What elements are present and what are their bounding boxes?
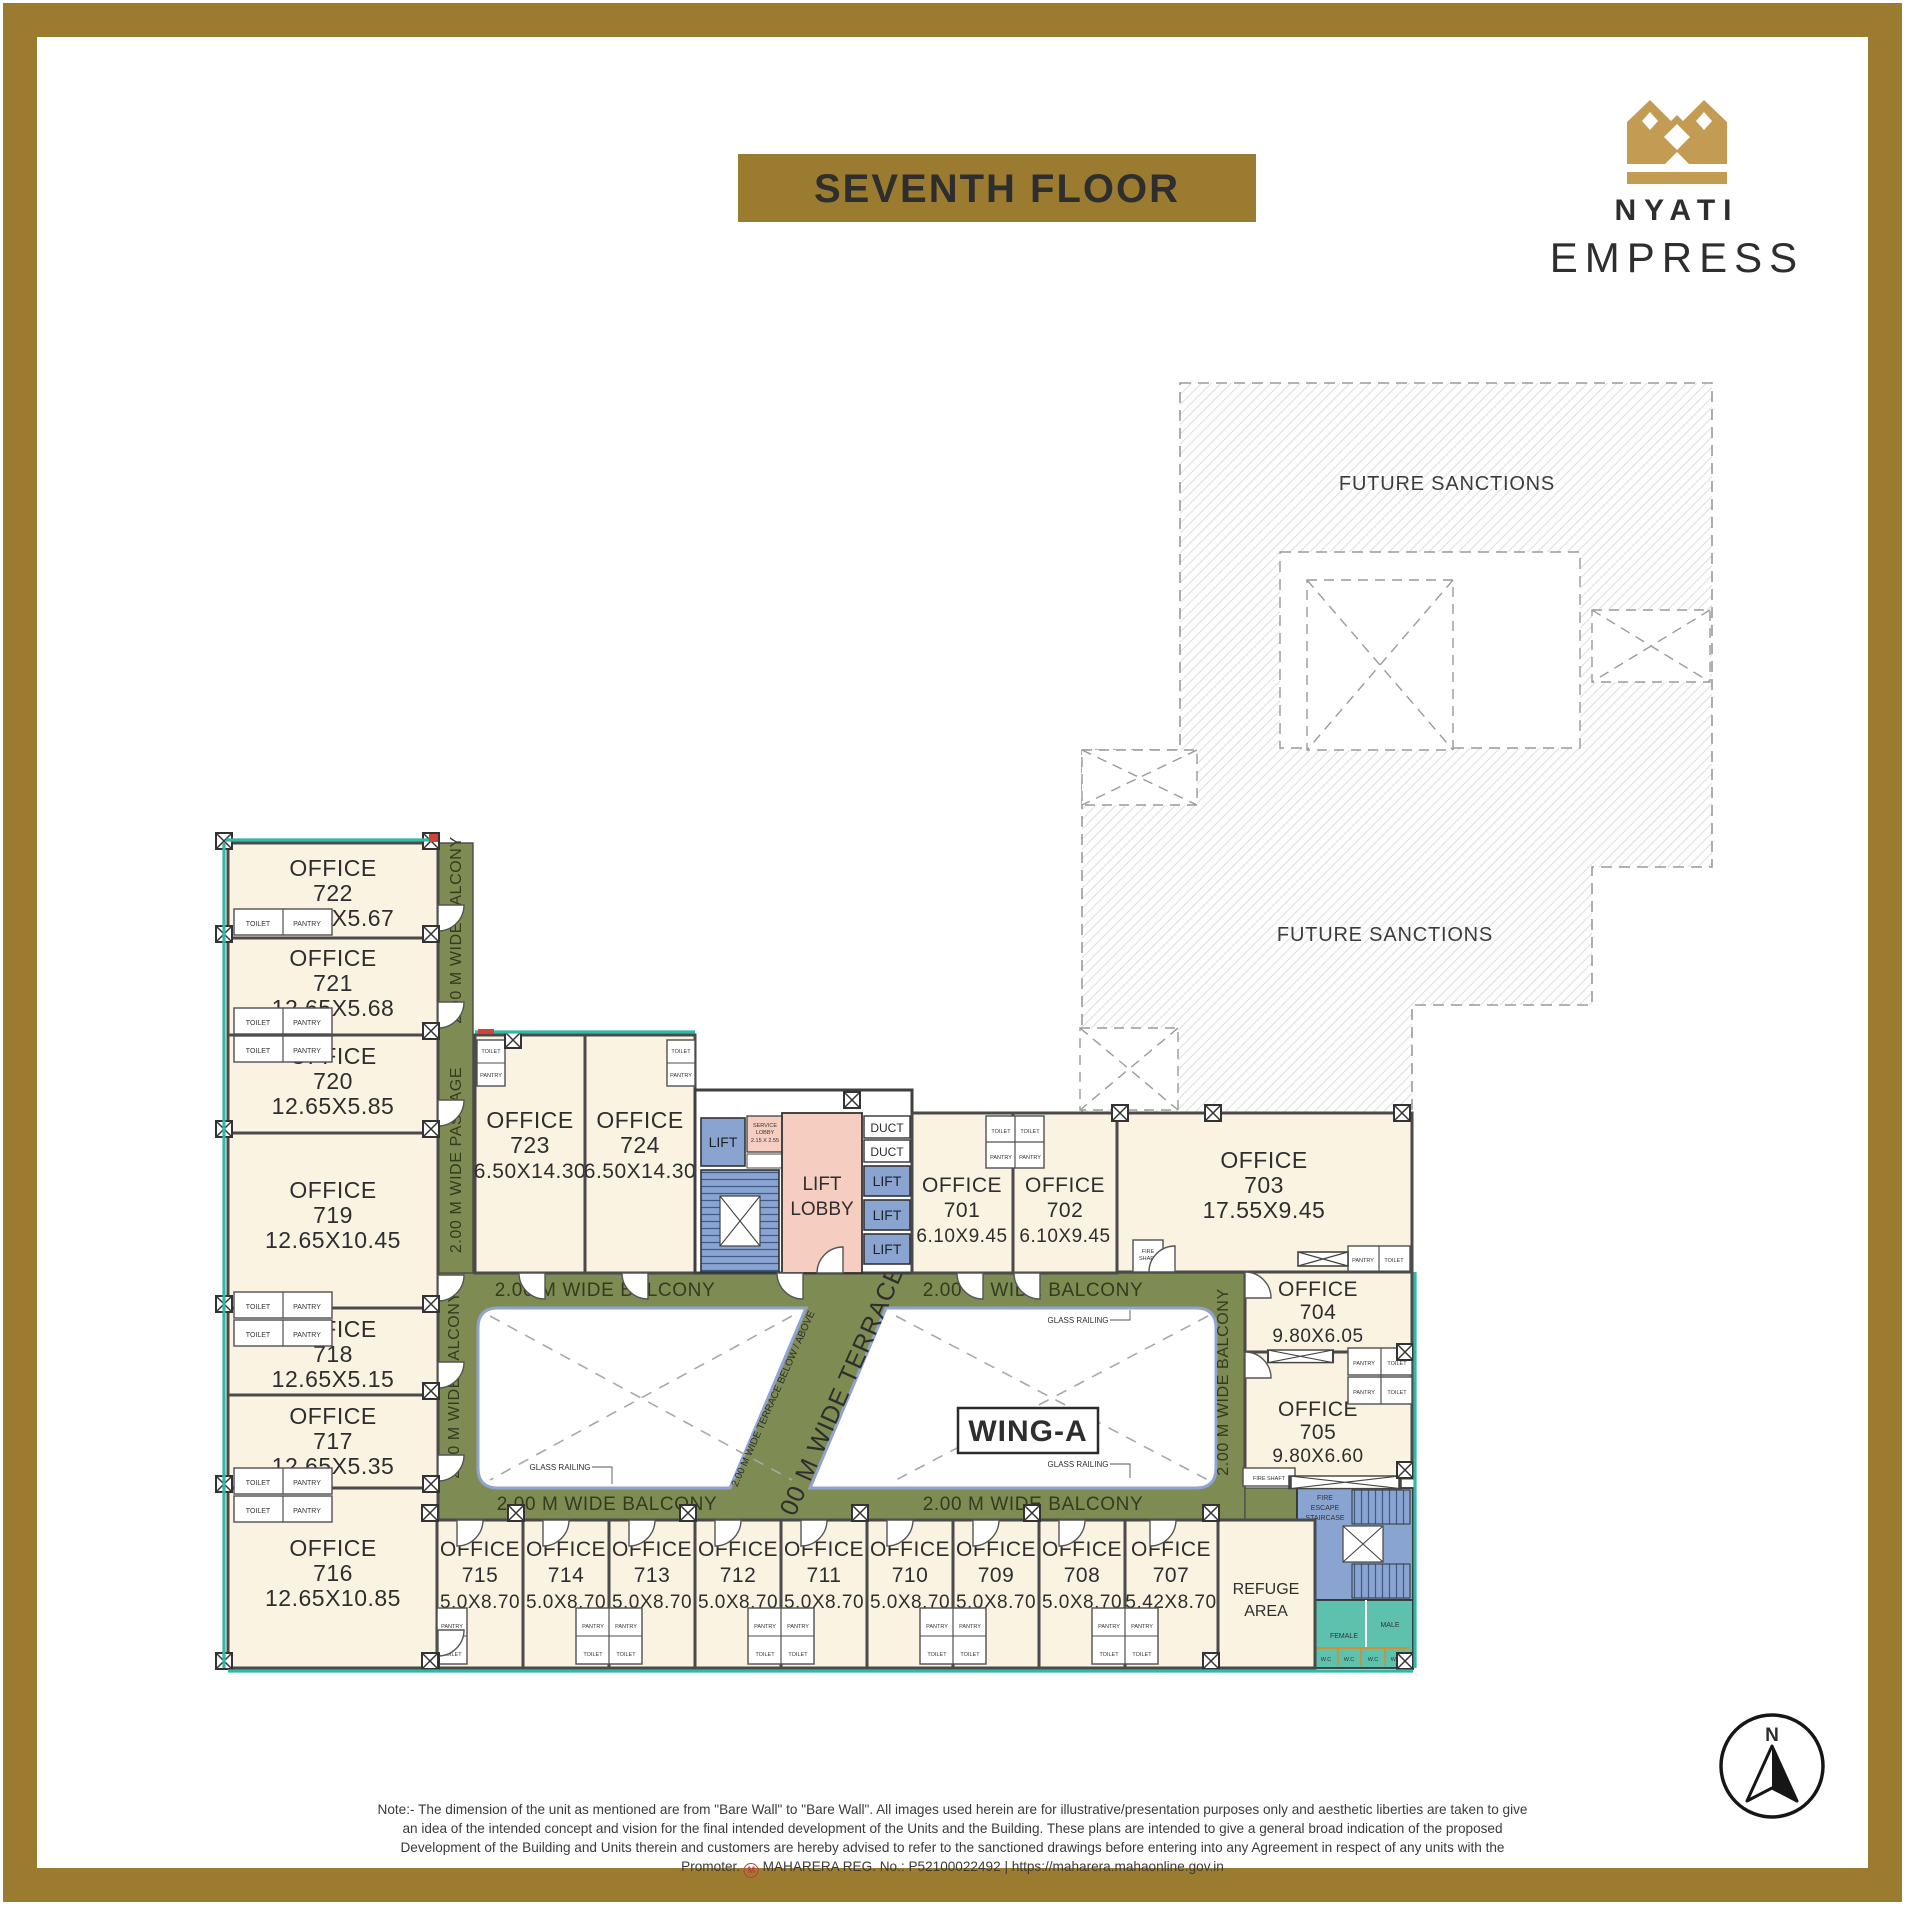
fire-shaft-705: FIRE SHAFT (1243, 1468, 1295, 1486)
office-number: 714 (548, 1564, 585, 1587)
office-719: OFFICE 719 12.65X10.45 (228, 1133, 438, 1308)
office-label: OFFICE (440, 1538, 520, 1561)
office-label: OFFICE (612, 1538, 692, 1561)
office-number: 724 (620, 1132, 660, 1158)
lift-label: LIFT (873, 1207, 902, 1223)
office-label: OFFICE (289, 1177, 376, 1203)
svg-text:TOILET: TOILET (755, 1652, 775, 1658)
glass-railing-label: GLASS RAILING (1048, 1460, 1109, 1469)
svg-text:PANTRY: PANTRY (1353, 1390, 1375, 1396)
refuge-area: REFUGE AREA (1218, 1520, 1315, 1668)
svg-text:FIRE SHAFT: FIRE SHAFT (1253, 1476, 1286, 1482)
svg-text:TOILET: TOILET (583, 1652, 603, 1658)
disclaimer-note: Note:- The dimension of the unit as ment… (370, 1800, 1535, 1879)
floorplan-page: SEVENTH FLOOR NYATI EMPRESS FUTURE SANCT… (0, 0, 1905, 1905)
office-label: OFFICE (526, 1538, 606, 1561)
svg-text:TOILET: TOILET (927, 1652, 947, 1658)
compass-north-label: N (1765, 1725, 1779, 1746)
office-number: 719 (313, 1202, 353, 1228)
office-number: 720 (313, 1068, 353, 1094)
crown-icon (1627, 100, 1727, 184)
office-label: OFFICE (784, 1538, 864, 1561)
office-number: 705 (1300, 1421, 1337, 1444)
maharera-badge-icon: M (744, 1863, 759, 1878)
office-label: OFFICE (289, 945, 376, 971)
svg-text:PANTRY: PANTRY (1353, 1361, 1375, 1367)
lift-label: LIFT (709, 1134, 738, 1150)
svg-text:PANTRY: PANTRY (480, 1073, 502, 1079)
office-dims: 12.65X10.45 (265, 1227, 401, 1253)
service-lobby-dims: 2.15 X 2.55 (751, 1138, 779, 1144)
office-number: 717 (313, 1428, 353, 1454)
svg-text:TOILET: TOILET (960, 1652, 980, 1658)
svg-text:PANTRY: PANTRY (926, 1624, 948, 1630)
refuge-label: REFUGE (1233, 1581, 1300, 1598)
male-toilet-label: MALE (1380, 1622, 1399, 1629)
balcony-ext (1245, 1488, 1297, 1520)
office-number: 712 (720, 1564, 757, 1587)
svg-text:PANTRY: PANTRY (293, 1332, 321, 1339)
svg-text:TOILET: TOILET (1020, 1129, 1040, 1135)
duct-label: DUCT (870, 1145, 904, 1159)
svg-text:PANTRY: PANTRY (1131, 1624, 1153, 1630)
future-sanctions-label: FUTURE SANCTIONS (1339, 473, 1555, 495)
office-label: OFFICE (1278, 1278, 1358, 1301)
svg-text:TOILET: TOILET (246, 1304, 271, 1311)
office-704: OFFICE 704 9.80X6.05 (1245, 1272, 1412, 1352)
pt-pair: PANTRYPANTRY TOILETTOILET (1092, 1608, 1158, 1664)
office-number: 721 (313, 970, 353, 996)
page-title: SEVENTH FLOOR (814, 167, 1180, 211)
office-dims: 6.50X14.30 (584, 1160, 696, 1183)
svg-text:TOILET: TOILET (1387, 1390, 1407, 1396)
svg-text:FIRE: FIRE (1317, 1495, 1333, 1502)
office-number: 722 (313, 880, 353, 906)
offices-west: OFFICE 722 12.65X5.67 OFFICE 721 12.65X5… (228, 843, 438, 1668)
office-label: OFFICE (596, 1107, 683, 1133)
office-label: OFFICE (956, 1538, 1036, 1561)
svg-text:PANTRY: PANTRY (615, 1624, 637, 1630)
svg-text:ESCAPE: ESCAPE (1311, 1505, 1340, 1512)
svg-text:FIRE: FIRE (1142, 1249, 1155, 1255)
office-label: OFFICE (1025, 1174, 1105, 1197)
lift-lobby-label: LIFT (802, 1174, 841, 1195)
toilet-pantry-701-702: TOILETTOILET PANTRYPANTRY (986, 1116, 1044, 1168)
service-lobby-label: LOBBY (756, 1130, 775, 1136)
svg-text:TOILET: TOILET (481, 1049, 501, 1055)
office-number: 708 (1064, 1564, 1101, 1587)
office-number: 701 (944, 1199, 981, 1222)
office-label: OFFICE (1042, 1538, 1122, 1561)
svg-text:W.C: W.C (1344, 1657, 1354, 1663)
svg-text:PANTRY: PANTRY (670, 1073, 692, 1079)
svg-text:TOILET: TOILET (1387, 1361, 1407, 1367)
balcony-label-east-vertical: 2.00 M WIDE BALCONY (1215, 1288, 1232, 1475)
wing-label-box: WING-A (958, 1408, 1098, 1453)
office-dims: 12.65X5.15 (272, 1366, 395, 1392)
brand-name: NYATI (1614, 194, 1739, 227)
svg-text:PANTRY: PANTRY (293, 1048, 321, 1055)
office-number: 704 (1300, 1301, 1337, 1324)
svg-text:PANTRY: PANTRY (1352, 1258, 1374, 1264)
office-number: 702 (1047, 1199, 1084, 1222)
svg-text:TOILET: TOILET (1384, 1258, 1404, 1264)
office-dims: 17.55X9.45 (1203, 1197, 1326, 1223)
floorplan-svg: SEVENTH FLOOR NYATI EMPRESS FUTURE SANCT… (0, 0, 1905, 1905)
svg-text:PANTRY: PANTRY (582, 1624, 604, 1630)
svg-text:PANTRY: PANTRY (293, 1508, 321, 1515)
rera-registration: MAHARERA REG. No.: P52100022492 | https:… (763, 1859, 1224, 1874)
svg-text:PANTRY: PANTRY (293, 921, 321, 928)
pt-pair: PANTRYPANTRY TOILETTOILET (920, 1608, 986, 1664)
svg-text:PANTRY: PANTRY (959, 1624, 981, 1630)
future-sanctions-zone: FUTURE SANCTIONS FUTURE SANCTIONS (1080, 383, 1712, 1113)
office-label: OFFICE (698, 1538, 778, 1561)
service-lobby-label: SERVICE (753, 1123, 777, 1129)
svg-text:PANTRY: PANTRY (293, 1304, 321, 1311)
refuge-label: AREA (1244, 1603, 1288, 1620)
pt-pair: PANTRYPANTRY TOILETTOILET (748, 1608, 814, 1664)
svg-text:PANTRY: PANTRY (754, 1624, 776, 1630)
red-marker (429, 834, 438, 842)
office-dims: 6.50X14.30 (474, 1160, 586, 1183)
svg-text:TOILET: TOILET (616, 1652, 636, 1658)
title-banner: SEVENTH FLOOR (738, 154, 1256, 222)
duct-label: DUCT (870, 1121, 904, 1135)
passage-label-west: 2.00 M WIDE PASSAGE (448, 1067, 465, 1253)
svg-text:W.C: W.C (1321, 1657, 1331, 1663)
office-number: 723 (510, 1132, 550, 1158)
svg-text:TOILET: TOILET (1099, 1652, 1119, 1658)
svg-text:TOILET: TOILET (671, 1049, 691, 1055)
office-label: OFFICE (289, 1403, 376, 1429)
svg-text:TOILET: TOILET (788, 1652, 808, 1658)
lift-label: LIFT (873, 1241, 902, 1257)
north-compass: N (1721, 1715, 1823, 1817)
office-dims: 6.10X9.45 (1019, 1226, 1110, 1247)
office-label: OFFICE (1131, 1538, 1211, 1561)
office-number: 707 (1153, 1564, 1190, 1587)
office-number: 703 (1244, 1172, 1284, 1198)
svg-text:W.C: W.C (1368, 1657, 1378, 1663)
svg-text:PANTRY: PANTRY (293, 1480, 321, 1487)
brand-product: EMPRESS (1550, 234, 1804, 281)
balcony-label-west-upper: 2.00 M WIDE BALCONY (448, 836, 465, 1023)
svg-text:PANTRY: PANTRY (1098, 1624, 1120, 1630)
office-label: OFFICE (1220, 1147, 1307, 1173)
offices-south: OFFICE 715 5.0X8.70 OFFICE 714 5.0X8.70 … (437, 1520, 1315, 1668)
office-dims: 9.80X6.60 (1272, 1446, 1363, 1467)
pt-pair: PANTRYPANTRY TOILETTOILET (576, 1608, 642, 1664)
office-number: 713 (634, 1564, 671, 1587)
svg-text:PANTRY: PANTRY (1019, 1155, 1041, 1161)
office-number: 711 (807, 1564, 842, 1587)
svg-text:PANTRY: PANTRY (293, 1020, 321, 1027)
svg-text:TOILET: TOILET (1132, 1652, 1152, 1658)
office-label: OFFICE (289, 1535, 376, 1561)
office-number: 709 (978, 1564, 1015, 1587)
svg-text:PANTRY: PANTRY (787, 1624, 809, 1630)
office-number: 715 (462, 1564, 499, 1587)
core-staircase (701, 1170, 779, 1272)
meter-box (747, 1154, 784, 1168)
glass-railing-label: GLASS RAILING (530, 1463, 591, 1472)
office-dims: 12.65X5.85 (272, 1093, 395, 1119)
office-dims: 9.80X6.05 (1272, 1326, 1363, 1347)
svg-text:TOILET: TOILET (246, 921, 271, 928)
office-number: 716 (313, 1560, 353, 1586)
svg-text:TOILET: TOILET (246, 1332, 271, 1339)
office-label: OFFICE (486, 1107, 573, 1133)
brand-logo: NYATI EMPRESS (1550, 100, 1804, 281)
office-number: 710 (892, 1564, 929, 1587)
svg-text:TOILET: TOILET (991, 1129, 1011, 1135)
office-label: OFFICE (870, 1538, 950, 1561)
red-marker (478, 1029, 494, 1034)
svg-text:PANTRY: PANTRY (990, 1155, 1012, 1161)
svg-text:PANTRY: PANTRY (441, 1624, 463, 1630)
svg-text:TOILET: TOILET (246, 1048, 271, 1055)
svg-text:TOILET: TOILET (246, 1480, 271, 1487)
svg-text:TOILET: TOILET (246, 1508, 271, 1515)
offices-mid: OFFICE 723 6.50X14.30 OFFICE 724 6.50X14… (474, 1035, 696, 1273)
office-label: OFFICE (289, 855, 376, 881)
svg-text:TOILET: TOILET (246, 1020, 271, 1027)
future-sanctions-label: FUTURE SANCTIONS (1277, 924, 1493, 946)
wing-label: WING-A (968, 1415, 1087, 1448)
pantry-toilet-703: PANTRYTOILET (1348, 1246, 1410, 1272)
office-label: OFFICE (922, 1174, 1002, 1197)
lift-label: LIFT (873, 1173, 902, 1189)
central-core: LIFT SERVICE LOBBY 2.15 X 2.55 LIFT LOBB… (695, 1090, 912, 1273)
office-dims: 12.65X10.85 (265, 1585, 401, 1611)
office-dims: 6.10X9.45 (916, 1226, 1007, 1247)
office-label: OFFICE (1278, 1398, 1358, 1421)
glass-railing-label: GLASS RAILING (1048, 1316, 1109, 1325)
female-toilet-label: FEMALE (1330, 1633, 1358, 1640)
lift-lobby-label: LOBBY (790, 1199, 854, 1220)
